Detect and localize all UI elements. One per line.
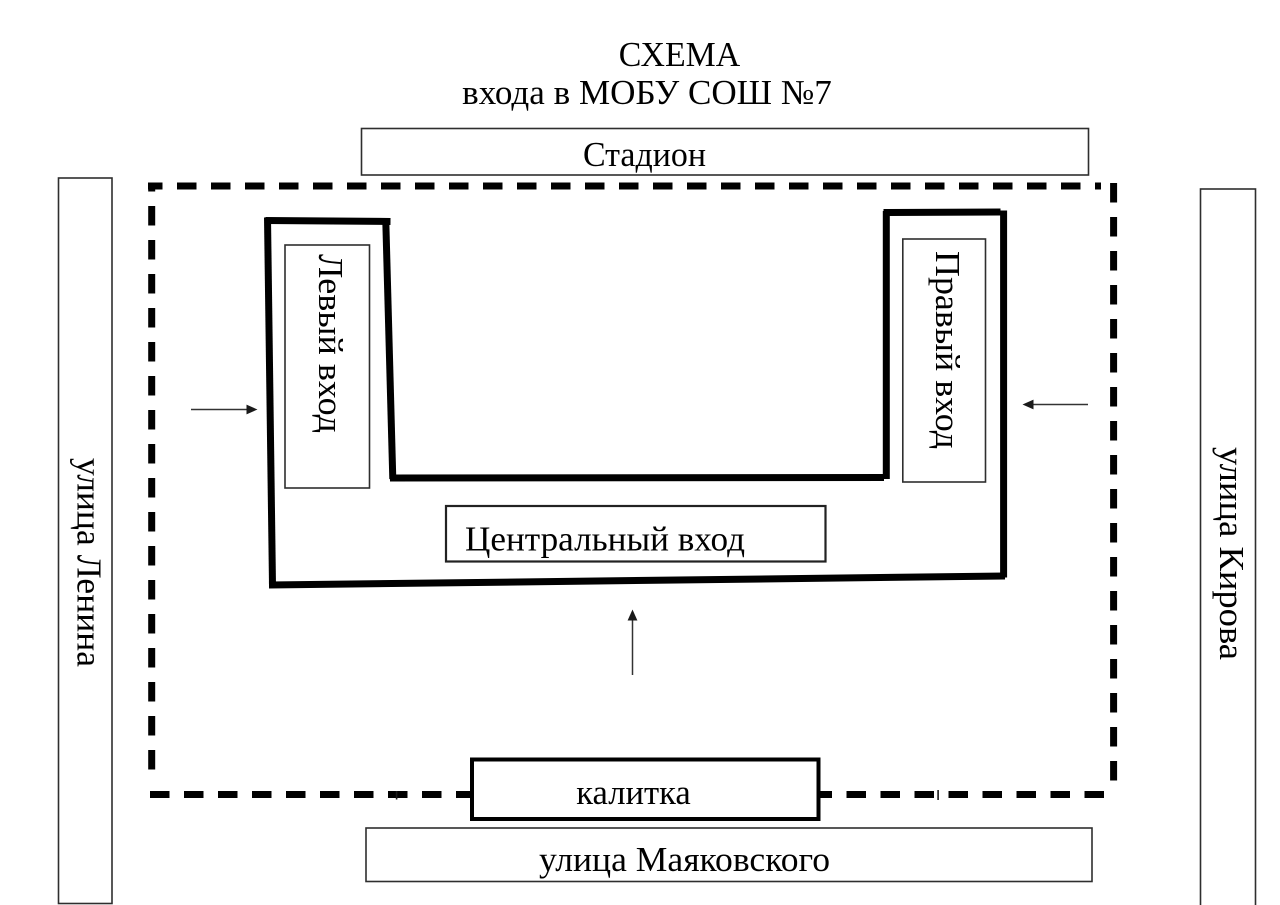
- svg-text:Стадион: Стадион: [583, 135, 706, 174]
- svg-text:улица Ленина: улица Ленина: [69, 458, 108, 667]
- svg-text:СХЕМА: СХЕМА: [619, 35, 741, 74]
- svg-text:Левый вход: Левый вход: [311, 254, 350, 433]
- svg-text:улица Маяковского: улица Маяковского: [539, 840, 830, 879]
- svg-text:Правый вход: Правый вход: [928, 251, 967, 449]
- svg-text:Центральный вход: Центральный вход: [465, 520, 745, 559]
- svg-text:улица Кирова: улица Кирова: [1212, 447, 1251, 660]
- svg-text:входа в МОБУ СОШ №7: входа в МОБУ СОШ №7: [462, 73, 832, 112]
- svg-text:калитка: калитка: [576, 773, 691, 812]
